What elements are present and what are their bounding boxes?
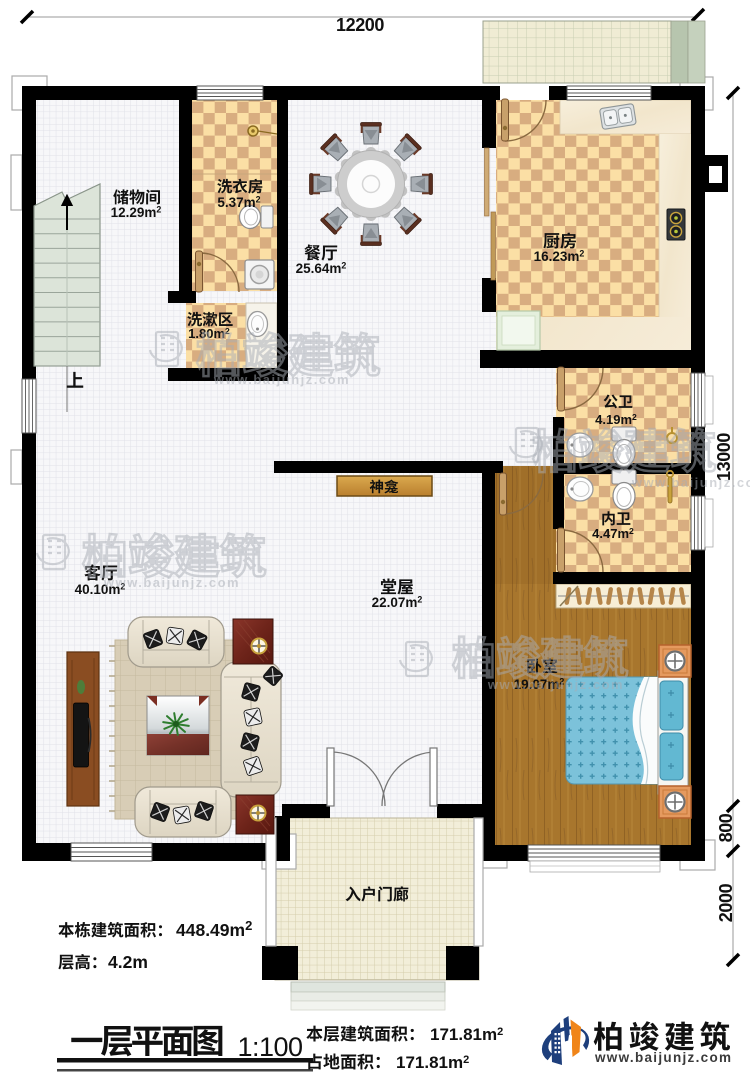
svg-text:4.47m2: 4.47m2 [592, 526, 634, 541]
svg-text:1:100: 1:100 [237, 1032, 302, 1062]
svg-text:12200: 12200 [336, 15, 384, 35]
svg-text:4.19m2: 4.19m2 [595, 412, 637, 427]
svg-text:2000: 2000 [716, 883, 736, 922]
svg-text:www.baijunjz.com: www.baijunjz.com [594, 1050, 732, 1065]
svg-text:16.23m2: 16.23m2 [534, 249, 585, 264]
svg-text:800: 800 [716, 813, 736, 842]
svg-text:25.64m2: 25.64m2 [296, 261, 347, 276]
svg-text:22.07m2: 22.07m2 [372, 595, 423, 610]
svg-text:www.baijunjz.com: www.baijunjz.com [631, 475, 750, 490]
svg-text:171.81m2: 171.81m2 [430, 1025, 503, 1044]
svg-text:www.baijunjz.com: www.baijunjz.com [213, 372, 350, 387]
svg-text:www.baijunjz.com: www.baijunjz.com [103, 575, 240, 590]
svg-text:4.2m: 4.2m [108, 952, 148, 972]
svg-text:www.baijunjz.com: www.baijunjz.com [487, 677, 624, 692]
svg-text:12.29m2: 12.29m2 [111, 205, 162, 220]
svg-text:5.37m2: 5.37m2 [217, 195, 260, 210]
svg-text:13000: 13000 [714, 433, 734, 481]
svg-text:448.49m2: 448.49m2 [176, 918, 252, 940]
svg-text:171.81m2: 171.81m2 [396, 1053, 469, 1072]
